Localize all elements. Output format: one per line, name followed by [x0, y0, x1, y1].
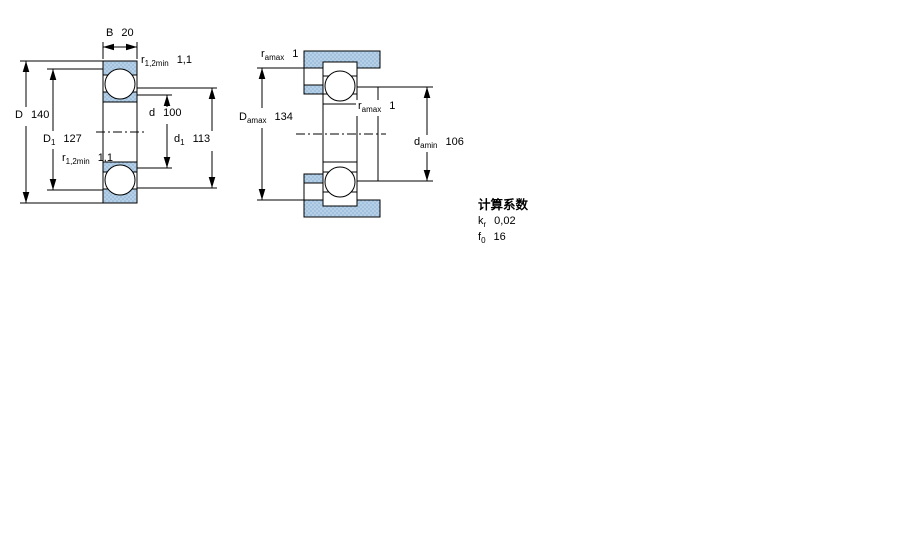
bearing-drawing-page: B20 r1,2min1,1 D140 D1127 r1,2min1,1 d10…	[0, 0, 900, 560]
dim-label-Damax: Damax134	[237, 111, 295, 127]
dim-label-damin: damin106	[412, 136, 466, 152]
ball-top	[105, 69, 135, 99]
dim-label-D1: D1127	[41, 133, 84, 149]
dim-label-r12min-top: r1,2min1,1	[141, 54, 192, 70]
factor-row-f0: f016	[478, 231, 506, 247]
ball-top-right	[325, 71, 355, 101]
factor-row-kr: kr0,02	[478, 215, 516, 231]
calculation-factors-heading: 计算系数	[478, 194, 528, 213]
dim-label-B: B20	[106, 27, 134, 43]
shaft-shoulder-top-section	[304, 85, 323, 94]
dimension-B	[103, 42, 137, 59]
dim-label-r12min-bottom: r1,2min1,1	[62, 152, 113, 168]
shaft-shoulder-bottom-section	[304, 174, 323, 183]
right-abutment-figure	[257, 51, 433, 217]
dim-label-D: D140	[13, 109, 51, 125]
dim-label-ramax-top: ramax1	[261, 48, 298, 64]
bearing-diagram-svg	[0, 0, 900, 560]
dim-label-d: d100	[147, 107, 183, 123]
dimension-D	[20, 61, 103, 203]
dimension-D1	[47, 69, 103, 190]
dim-label-d1: d1113	[174, 133, 210, 149]
ball-bottom-right	[325, 167, 355, 197]
ball-bottom	[105, 165, 135, 195]
dim-label-ramax-right: ramax1	[356, 100, 397, 116]
